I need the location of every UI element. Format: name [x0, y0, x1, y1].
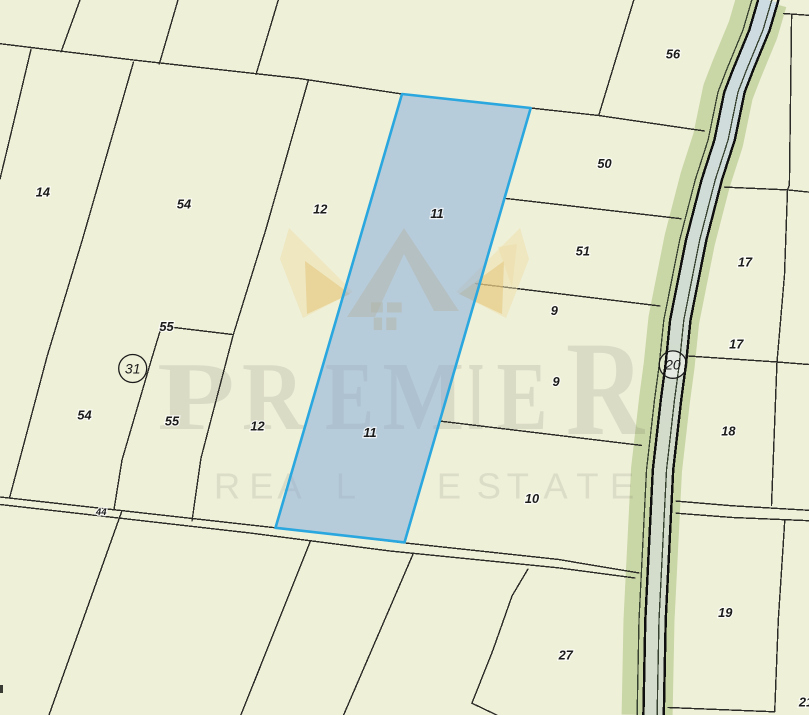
- svg-text:50: 50: [597, 156, 611, 171]
- svg-text:9: 9: [552, 374, 560, 389]
- svg-text:E: E: [497, 343, 548, 450]
- svg-text:51: 51: [576, 243, 590, 258]
- svg-text:14: 14: [36, 185, 50, 200]
- svg-text:E: E: [249, 465, 273, 506]
- svg-text:11: 11: [430, 206, 443, 221]
- svg-text:I: I: [468, 343, 484, 450]
- svg-text:P: P: [157, 343, 235, 450]
- svg-text:9: 9: [551, 303, 559, 318]
- svg-text:17: 17: [729, 336, 744, 351]
- svg-text:E: E: [437, 465, 461, 506]
- svg-text:A: A: [543, 465, 568, 506]
- svg-text:54: 54: [77, 408, 91, 423]
- svg-text:18: 18: [721, 423, 736, 438]
- svg-text:17: 17: [738, 255, 753, 270]
- svg-text:27: 27: [558, 647, 574, 662]
- svg-text:20: 20: [664, 356, 681, 372]
- svg-text:R: R: [242, 343, 305, 450]
- svg-text:44: 44: [95, 507, 107, 518]
- svg-text:S: S: [477, 465, 501, 506]
- svg-text:55: 55: [165, 414, 180, 429]
- svg-text:21: 21: [798, 695, 809, 710]
- svg-text:R: R: [566, 315, 645, 464]
- svg-text:E: E: [610, 465, 634, 506]
- svg-text:R: R: [214, 465, 240, 506]
- svg-text:12: 12: [250, 419, 264, 434]
- svg-text:12: 12: [313, 202, 327, 217]
- svg-text:54: 54: [177, 196, 191, 211]
- svg-text:56: 56: [666, 47, 681, 62]
- svg-text:11: 11: [363, 425, 376, 440]
- svg-text:T: T: [576, 465, 598, 506]
- svg-text:31: 31: [125, 360, 141, 376]
- svg-text:55: 55: [159, 319, 174, 334]
- svg-text:19: 19: [718, 605, 733, 620]
- svg-text:10: 10: [525, 491, 539, 506]
